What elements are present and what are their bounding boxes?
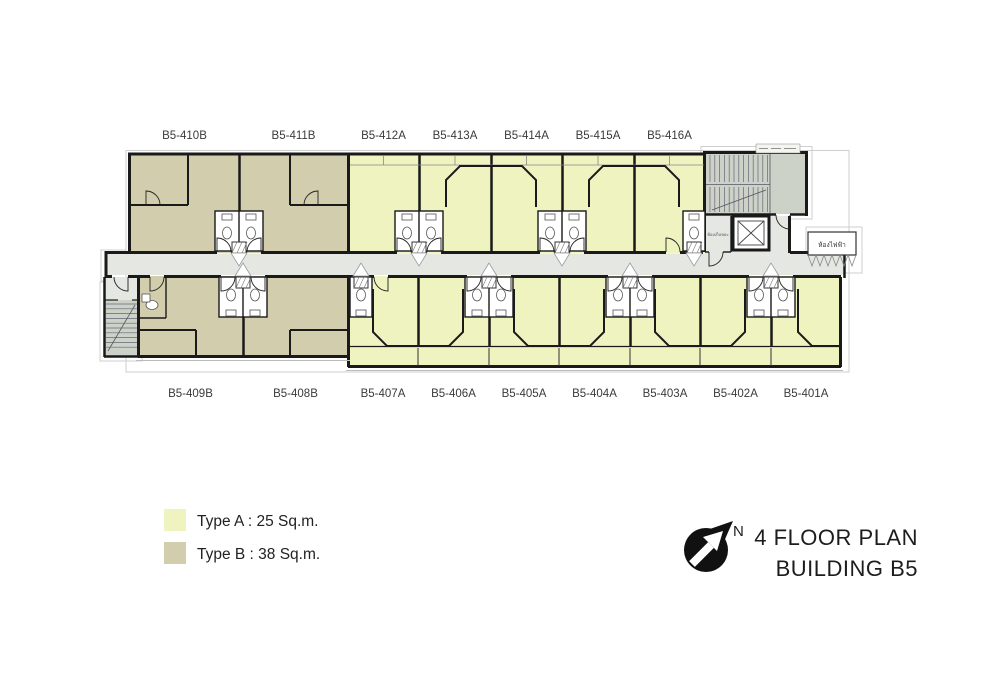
legend-label-type-b: Type B : 38 Sq.m.	[197, 546, 320, 563]
service-shaft	[482, 277, 496, 288]
electrical-room-label: ห้องไฟฟ้า	[818, 241, 846, 249]
unit-label-B5-402A: B5-402A	[713, 388, 758, 400]
legend-label-type-a: Type A : 25 Sq.m.	[197, 513, 319, 530]
plan-title: 4 FLOOR PLAN BUILDING B5	[754, 525, 918, 581]
plan-title-line1: 4 FLOOR PLAN	[754, 525, 918, 550]
legend-swatch-type-b	[164, 542, 186, 564]
stair-micro-label	[756, 144, 800, 153]
unit-label-B5-412A: B5-412A	[361, 130, 406, 142]
unit-label-B5-413A: B5-413A	[433, 130, 478, 142]
service-shaft	[687, 242, 701, 253]
unit-label-B5-401A: B5-401A	[784, 388, 829, 400]
plan-title-line2: BUILDING B5	[776, 556, 918, 581]
floor-plan-canvas: ห้องเก็บขยะ ห้องไฟฟ้า B5-410BB5-411BB5-4…	[0, 0, 1000, 690]
unit-label-B5-405A: B5-405A	[502, 388, 547, 400]
service-shaft	[236, 277, 250, 288]
unit-label-B5-406A: B5-406A	[431, 388, 476, 400]
trash-room: ห้องเก็บขยะ	[707, 231, 729, 237]
corridor	[106, 254, 845, 276]
service-shaft	[764, 277, 778, 288]
service-shaft	[354, 277, 368, 288]
service-shaft	[623, 277, 637, 288]
unit-label-B5-414A: B5-414A	[504, 130, 549, 142]
unit-label-B5-415A: B5-415A	[576, 130, 621, 142]
unit-label-B5-411B: B5-411B	[272, 130, 316, 142]
floor-plan-page: ห้องเก็บขยะ ห้องไฟฟ้า B5-410BB5-411BB5-4…	[0, 0, 1000, 690]
trash-room-label: ห้องเก็บขยะ	[707, 231, 729, 237]
north-arrow: N	[684, 521, 744, 572]
unit-label-B5-410B: B5-410B	[162, 130, 207, 142]
service-shaft	[412, 242, 426, 253]
service-shaft	[555, 242, 569, 253]
legend-swatch-type-a	[164, 509, 186, 531]
right-staircase	[706, 152, 806, 214]
service-shaft	[232, 242, 246, 253]
legend: Type A : 25 Sq.m. Type B : 38 Sq.m.	[164, 509, 320, 564]
unit-label-B5-408B: B5-408B	[273, 388, 318, 400]
unit-label-B5-403A: B5-403A	[643, 388, 688, 400]
unit-label-B5-416A: B5-416A	[647, 130, 692, 142]
north-letter: N	[733, 523, 744, 540]
unit-label-B5-407A: B5-407A	[361, 388, 406, 400]
unit-label-B5-409B: B5-409B	[168, 388, 213, 400]
unit-label-B5-404A: B5-404A	[572, 388, 617, 400]
